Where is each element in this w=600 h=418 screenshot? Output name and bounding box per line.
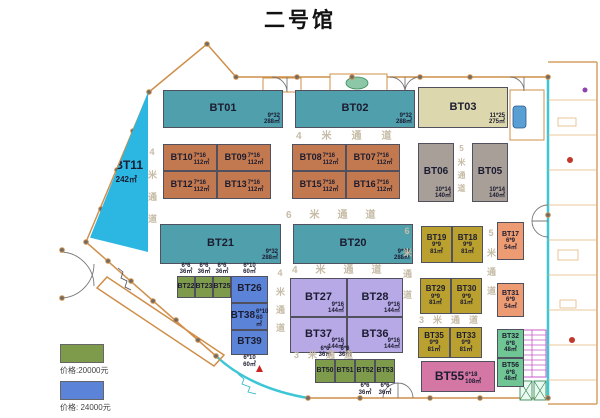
booth-name: BT23: [195, 283, 212, 290]
booth-bt23[interactable]: BT23 6*636㎡: [195, 276, 213, 298]
booth-bt25[interactable]: BT25 6*636㎡: [213, 276, 231, 298]
booth-bt51[interactable]: BT51 6*636㎡: [335, 359, 355, 383]
booth-name: BT03: [450, 102, 477, 114]
booth-bt17[interactable]: BT17 6*954㎡: [497, 222, 524, 260]
booth-name: BT31: [502, 290, 519, 297]
booth-bt29[interactable]: BT29 9*981㎡: [420, 278, 451, 314]
booth-name: BT53: [376, 367, 393, 374]
passage-label: 4米通道: [296, 127, 412, 142]
booth-name: BT35: [424, 332, 444, 340]
booth-bt22[interactable]: BT22 6*636㎡: [177, 276, 195, 298]
booth-bt18[interactable]: BT18 9*981㎡: [452, 226, 483, 263]
booth-dims: 6*848㎡: [504, 370, 517, 383]
booth-dims: 6*848㎡: [504, 341, 517, 354]
booth-name: BT19: [427, 234, 447, 242]
booth-name: BT10: [171, 153, 193, 162]
booth-name: BT32: [502, 333, 519, 340]
booth-name: BT17: [502, 231, 519, 238]
booth-dims: 6*18108㎡: [465, 372, 481, 385]
booth-name: BT21: [207, 238, 234, 250]
booth-dims: 6*636㎡: [356, 383, 374, 396]
booth-bt19[interactable]: BT19 9*981㎡: [421, 226, 452, 263]
booth-bt28[interactable]: BT28 9*16144㎡: [347, 278, 403, 317]
booth-dims: 6*1060㎡: [232, 355, 267, 368]
booth-dims: 9*16144㎡: [384, 338, 400, 351]
booth-dims: 7*16112㎡: [248, 153, 264, 166]
booth-bt53[interactable]: BT53 6*636㎡: [375, 359, 395, 383]
booth-dims: 9*16144㎡: [384, 302, 400, 315]
booth-bt01[interactable]: BT01 9*32288㎡: [163, 90, 283, 128]
booth-bt15[interactable]: BT15 7*16112㎡: [292, 171, 346, 199]
booth-bt35[interactable]: BT35 9*981㎡: [418, 327, 450, 358]
booth-name: BT05: [478, 167, 502, 178]
booth-name: BT06: [424, 167, 448, 178]
booth-dims: 9*981㎡: [460, 340, 473, 353]
booth-bt16[interactable]: BT16 7*16112㎡: [346, 171, 400, 199]
booth-bt26[interactable]: BT26 6*1060㎡: [231, 276, 268, 303]
passage-label: 3米通道: [294, 348, 362, 361]
legend-label: 价格: 24000元: [60, 402, 111, 413]
booth-dims: 6*954㎡: [504, 238, 517, 251]
booth-dims: 11*25275㎡: [489, 113, 505, 126]
booth-name: BT18: [458, 234, 478, 242]
booth-dims: 9*981㎡: [430, 242, 443, 255]
booth-dims: 7*16112㎡: [194, 153, 210, 166]
booth-bt38[interactable]: BT38 6*1060㎡: [231, 303, 268, 330]
booth-dims: 10*14140㎡: [435, 187, 451, 200]
booth-bt56[interactable]: BT56 6*848㎡: [497, 358, 524, 387]
booth-name: BT50: [316, 367, 333, 374]
booth-name: BT55: [435, 370, 464, 383]
booth-bt02[interactable]: BT02 9*32288㎡: [295, 90, 415, 128]
booth-dims: 9*32288㎡: [396, 113, 412, 126]
booth-name: BT01: [210, 103, 237, 115]
booth-dims: 6*636㎡: [376, 383, 394, 396]
booth-name: BT08: [300, 153, 322, 162]
price-legend: 价格:20000元 价格: 24000元: [60, 344, 111, 418]
booth-dims: 7*16112㎡: [377, 180, 393, 193]
booth-bt31[interactable]: BT31 6*954㎡: [497, 283, 524, 317]
booth-dims: 6*636㎡: [196, 263, 212, 276]
legend-item: 价格:20000元: [60, 344, 111, 376]
booth-name: BT02: [342, 103, 369, 115]
booth-bt08[interactable]: BT08 7*16112㎡: [292, 144, 346, 171]
booth-bt12[interactable]: BT12 7*16112㎡: [163, 171, 217, 199]
booth-bt32[interactable]: BT32 6*848㎡: [497, 329, 524, 358]
booth-dims: 6*1060㎡: [232, 263, 267, 276]
booth-dims: 6*636㎡: [214, 263, 230, 276]
booth-dims: 9*981㎡: [428, 340, 441, 353]
legend-color-swatch: [60, 381, 104, 400]
booth-name: BT22: [177, 283, 194, 290]
passage-label: 4米通道: [146, 147, 159, 236]
booth-bt52[interactable]: BT52 6*636㎡: [355, 359, 375, 383]
booth-dims: 6*954㎡: [504, 297, 517, 310]
booth-name: BT07: [354, 153, 376, 162]
page-title: 二号馆: [0, 4, 600, 34]
booth-dims: 9*32288㎡: [264, 113, 280, 126]
booth-bt27[interactable]: BT27 9*16144㎡: [290, 278, 347, 317]
booth-dims: 6*636㎡: [178, 263, 194, 276]
booth-name: BT39: [237, 337, 261, 348]
booth-bt30[interactable]: BT30 9*981㎡: [451, 278, 482, 314]
booth-bt50[interactable]: BT50 6*636㎡: [315, 359, 335, 383]
booth-name: BT15: [300, 180, 322, 189]
booth-name: BT20: [340, 238, 367, 250]
passage-label: 5米通道: [456, 144, 467, 197]
booth-dims: 9*981㎡: [460, 294, 473, 307]
booth-name: BT51: [336, 367, 353, 374]
booth-bt39[interactable]: BT39 6*1060㎡: [231, 330, 268, 355]
booth-bt13[interactable]: BT13 7*16112㎡: [217, 171, 271, 199]
booth-bt09[interactable]: BT09 7*16112㎡: [217, 144, 271, 171]
booth-name: BT33: [456, 332, 476, 340]
booth-bt07[interactable]: BT07 7*16112㎡: [346, 144, 400, 171]
legend-item: 价格: 24000元: [60, 381, 111, 413]
passage-label: 6米通道: [401, 226, 414, 311]
booth-name: BT38: [231, 311, 255, 322]
booth-name: BT16: [354, 180, 376, 189]
right-annex: [548, 62, 597, 404]
legend-label: 价格:20000元: [60, 365, 111, 376]
booth-dims: 9*981㎡: [429, 294, 442, 307]
booth-dims: 9*16144㎡: [328, 302, 344, 315]
booth-name: BT09: [225, 153, 247, 162]
booth-bt33[interactable]: BT33 9*981㎡: [450, 327, 482, 358]
booth-dims: 10*14140㎡: [489, 187, 505, 200]
booth-dims: 9*981㎡: [461, 242, 474, 255]
booth-dims: 9*32288㎡: [262, 249, 278, 262]
booth-bt05[interactable]: BT05 10*14140㎡: [472, 143, 508, 202]
booth-name: BT13: [225, 180, 247, 189]
booth-name: BT30: [457, 285, 477, 293]
booth-bt06[interactable]: BT06 10*14140㎡: [418, 143, 454, 202]
booth-bt10[interactable]: BT10 7*16112㎡: [163, 144, 217, 171]
booth-bt03[interactable]: BT03 11*25275㎡: [418, 87, 508, 128]
booth-dims: 7*16112㎡: [323, 180, 339, 193]
booth-name: BT52: [356, 367, 373, 374]
booth-bt21[interactable]: BT21 9*32288㎡: [160, 224, 281, 264]
floor-plan: 二号馆: [0, 0, 600, 418]
passage-label: 6米通道: [286, 206, 394, 221]
booth-bt55[interactable]: BT55 6*18108㎡: [421, 361, 495, 392]
booth-bt20[interactable]: BT20 9*32288㎡: [293, 224, 413, 264]
passage-label: 4米通道: [274, 268, 287, 341]
booth-name: BT25: [213, 283, 230, 290]
passage-label: 4米通道: [292, 261, 400, 276]
booth-name: BT12: [171, 180, 193, 189]
passage-label: 3米通道: [419, 313, 487, 326]
booth-dims: 6*1060㎡: [256, 309, 268, 329]
booth-dims: 7*16112㎡: [194, 180, 210, 193]
booth-name: BT56: [502, 362, 519, 369]
booth-name: BT26: [237, 284, 261, 295]
booth-name: BT29: [426, 285, 446, 293]
booth-dims: 242㎡: [116, 176, 137, 185]
booth-dims: 7*16112㎡: [248, 180, 264, 193]
legend-color-swatch: [60, 344, 104, 363]
booth-dims: 7*16112㎡: [377, 153, 393, 166]
passage-label: 5米通道: [485, 228, 498, 305]
booth-dims: 7*16112㎡: [323, 153, 339, 166]
